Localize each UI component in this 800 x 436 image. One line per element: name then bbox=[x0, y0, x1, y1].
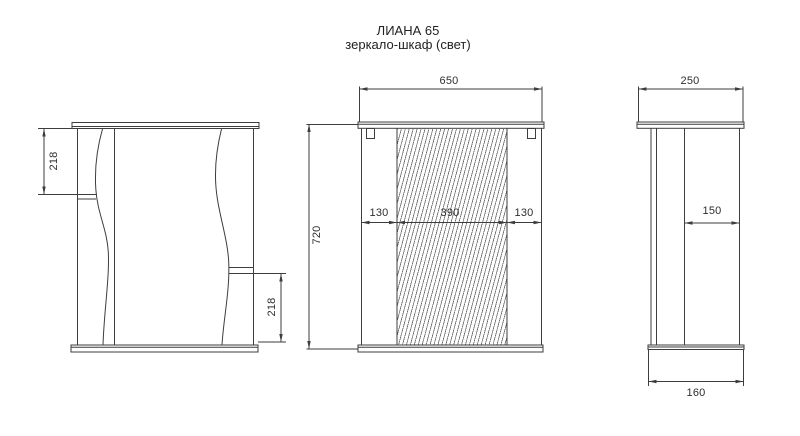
technical-drawing-canvas: ЛИАНА 65 зеркало-шкаф (свет) bbox=[0, 0, 800, 436]
drawing-linework bbox=[0, 0, 800, 436]
front-top-bar bbox=[72, 123, 259, 129]
dim-label-upper-shelf-height: 218 bbox=[48, 152, 60, 171]
dim-label-left-panel-width: 130 bbox=[370, 207, 389, 219]
main-chain-dimension bbox=[362, 221, 542, 224]
side-top-bar bbox=[637, 122, 744, 128]
side-view-linework bbox=[637, 87, 744, 387]
front-left-wave-curve bbox=[95, 129, 108, 345]
side-depth-dimension bbox=[639, 87, 744, 122]
front-view-linework bbox=[38, 123, 286, 353]
front-right-wave-curve bbox=[215, 129, 228, 345]
dim-label-right-panel-width: 130 bbox=[515, 207, 534, 219]
main-bottom-bar bbox=[358, 345, 543, 352]
main-top-bar bbox=[358, 122, 544, 128]
dim-label-base-depth: 160 bbox=[687, 387, 706, 399]
right-hinge-block bbox=[528, 129, 536, 139]
side-base-depth-dimension bbox=[649, 350, 744, 387]
dim-label-overall-height: 720 bbox=[311, 226, 323, 245]
dim-label-mirror-width: 390 bbox=[441, 207, 460, 219]
dim-label-top-depth: 250 bbox=[681, 75, 700, 87]
dim-label-overall-width: 650 bbox=[440, 75, 459, 87]
front-bottom-bar bbox=[71, 345, 258, 352]
dim-label-lower-shelf-height: 218 bbox=[266, 298, 278, 317]
left-hinge-block bbox=[367, 129, 375, 139]
main-view-linework bbox=[307, 87, 545, 353]
main-width-dimension bbox=[360, 87, 543, 122]
side-inner-depth-dimension bbox=[685, 221, 740, 224]
dim-label-inner-depth: 150 bbox=[703, 205, 722, 217]
